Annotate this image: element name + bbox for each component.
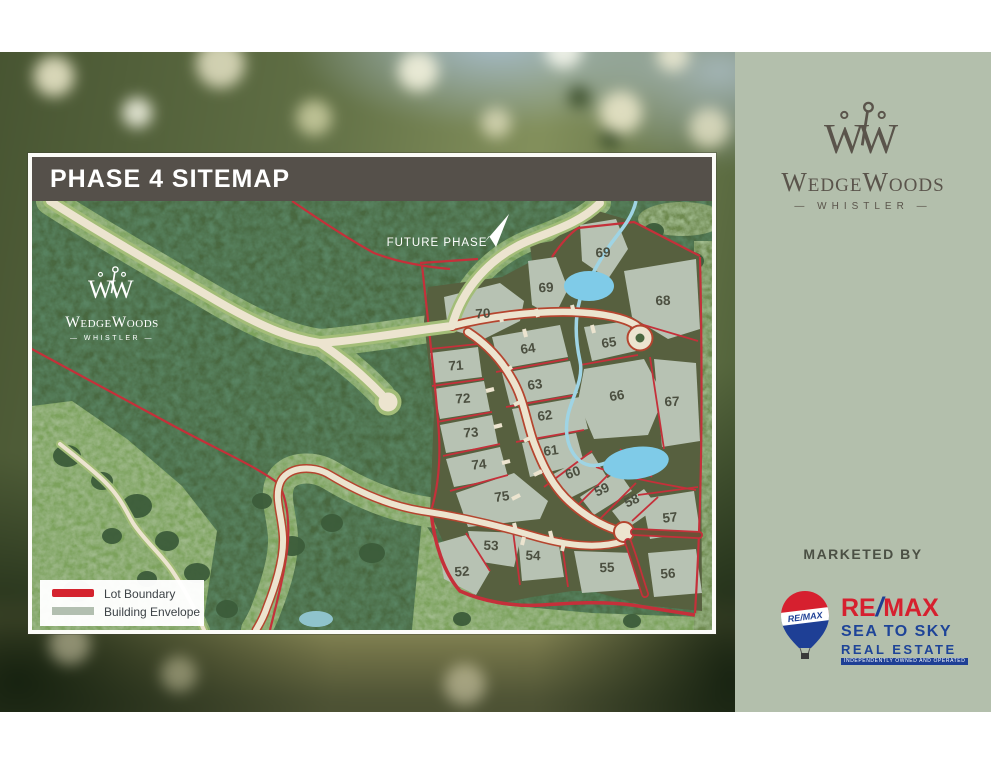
- brand-name: WedgeWoods: [735, 167, 991, 198]
- legend-label-building-envelope: Building Envelope: [104, 605, 200, 619]
- watermark-name: WedgeWoods: [65, 314, 159, 331]
- marketed-by-label: MARKETED BY: [735, 546, 991, 562]
- lot-number-label: 55: [599, 560, 615, 576]
- lot-number-label: 52: [454, 563, 470, 579]
- pond-upper: [564, 271, 614, 301]
- page-title: PHASE 4 SITEMAP: [32, 157, 712, 201]
- lot-number-label: 71: [448, 357, 465, 373]
- future-phase-label: FUTURE PHASE: [387, 237, 488, 249]
- lot-number-label: 64: [519, 340, 536, 357]
- lot-number-label: 62: [536, 407, 553, 424]
- sitemap-panel: PHASE 4 SITEMAP: [28, 153, 716, 634]
- remax-balloon-icon: RE/MAX: [777, 590, 833, 666]
- legend-swatch-lot-boundary: [52, 589, 94, 597]
- remax-region: SEA TO SKY: [841, 624, 968, 640]
- remax-wordmark: RE/MAX SEA TO SKY REAL ESTATE INDEPENDEN…: [841, 590, 968, 665]
- lot-number-label: 63: [526, 376, 543, 393]
- lot-number-label: 70: [475, 305, 491, 321]
- lot-number-label: 57: [662, 509, 679, 525]
- lot-number-label: 75: [493, 488, 510, 505]
- lot-number-label: 69: [595, 245, 611, 261]
- legend: Lot Boundary Building Envelope: [40, 580, 204, 626]
- legend-swatch-building-envelope: [52, 607, 94, 615]
- watermark-tagline: — WHISTLER —: [70, 335, 154, 342]
- lot-number-label: 54: [525, 548, 541, 564]
- lot-number-label: 65: [600, 334, 617, 351]
- wedgewoods-monogram-icon: [824, 100, 902, 158]
- lot-number-label: 53: [483, 538, 499, 554]
- legend-label-lot-boundary: Lot Boundary: [104, 587, 175, 601]
- remax-logo: RE/MAX RE/MAX SEA TO SKY REAL ESTATE IND…: [777, 590, 968, 666]
- pond-bottom: [299, 611, 333, 627]
- remax-division: REAL ESTATE: [841, 643, 968, 656]
- lot-number-label: 66: [608, 387, 626, 404]
- wedgewoods-brand: WedgeWoods — WHISTLER —: [735, 100, 991, 212]
- lot-number-label: 72: [455, 390, 471, 406]
- lot-number-label: 73: [463, 424, 480, 440]
- lot-number-label: 68: [655, 293, 671, 309]
- sidebar: WedgeWoods — WHISTLER — MARKETED BY RE/M…: [735, 52, 991, 712]
- brand-tagline: — WHISTLER —: [735, 201, 991, 212]
- lot-number-label: 69: [538, 280, 554, 296]
- lot-number-label: 74: [471, 456, 488, 473]
- remax-disclaimer: INDEPENDENTLY OWNED AND OPERATED: [841, 658, 968, 665]
- remax-brand: RE/MAX: [841, 594, 968, 621]
- sitemap-drawing: 5253545556575859606162636465666768696970…: [32, 201, 712, 630]
- lot-number-label: 56: [660, 565, 677, 581]
- lot-number-label: 61: [542, 442, 559, 459]
- lot-number-label: 67: [664, 394, 680, 410]
